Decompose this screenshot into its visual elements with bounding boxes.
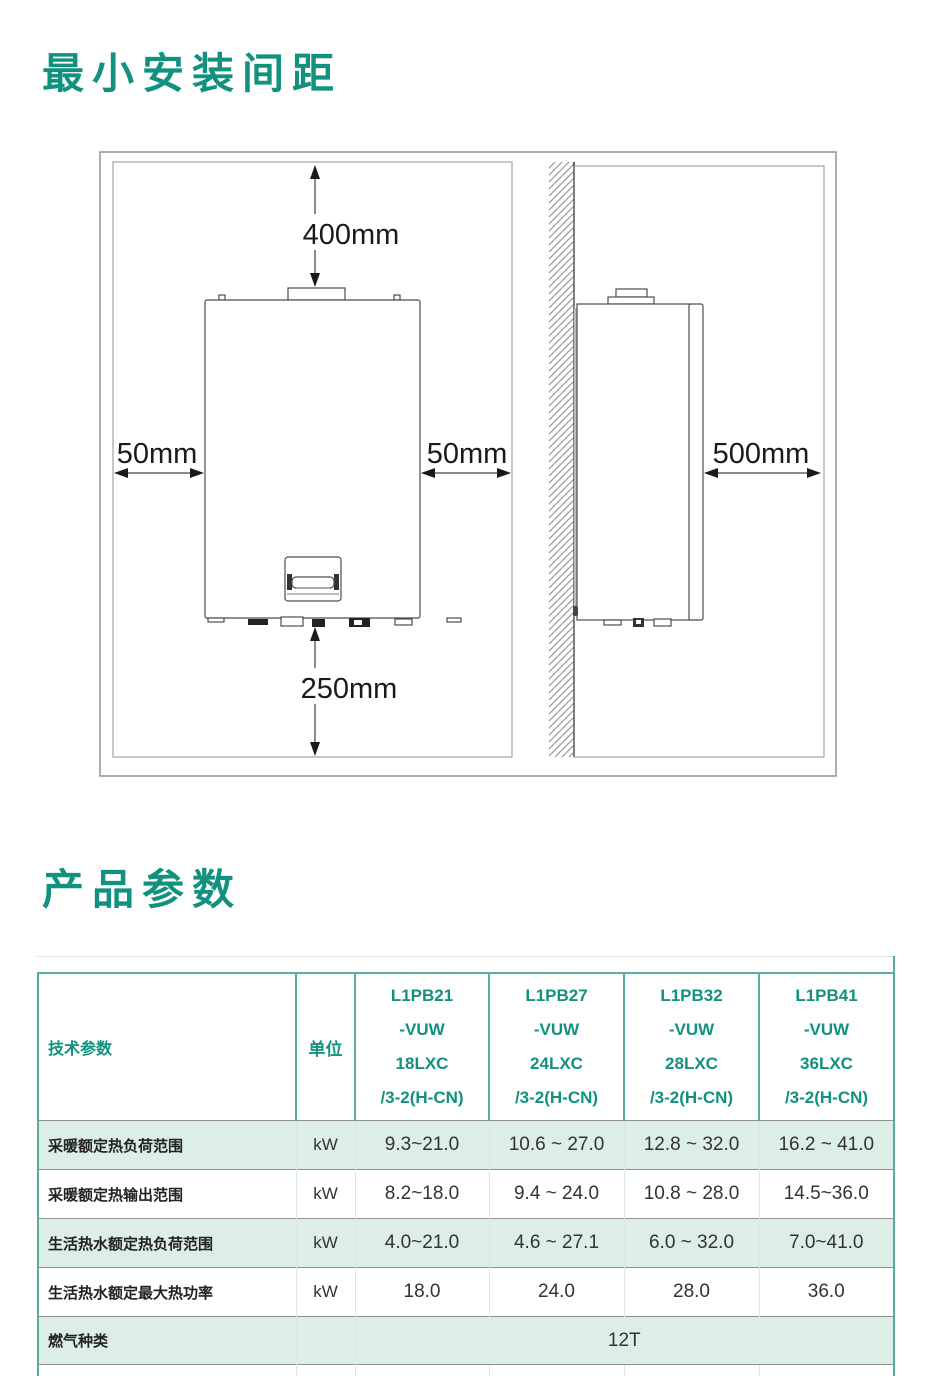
value-cell: 4.6 ~ 27.1 [489,1219,624,1268]
value-cell: 10.6 ~ 27.0 [489,1121,624,1170]
value-cell: 4.0~21.0 [355,1219,489,1268]
flue-collar-front [288,288,345,300]
boiler-front-view [205,288,461,627]
dimension-left: 50mm [115,438,203,473]
install-clearance-title: 最小安装间距 [42,50,342,98]
dimension-label-right: 50mm [427,438,508,470]
model-header-cell: L1PB41 -VUW 36LXC /3-2(H-CN) [759,973,894,1121]
row-label-cell: 燃气种类 [38,1317,296,1365]
value-cell: 12.8 ~ 32.0 [624,1121,759,1170]
wall-hatch [549,162,574,757]
param-header-cell: 技术参数 [38,973,296,1121]
row-label-cell: 生活热水额定热负荷范围 [38,1219,296,1268]
value-cell: 9.3~21.0 [355,1121,489,1170]
unit-cell: kW [296,1170,355,1219]
value-cell: 36.0 [759,1268,894,1317]
mounting-tab [394,295,400,300]
mounting-tab [219,295,225,300]
control-panel [285,557,341,601]
value-cell: 6.0 ~ 32.0 [624,1219,759,1268]
dimension-label-left: 50mm [117,438,198,470]
dimension-top: 400mm [301,166,401,286]
value-cell: 9.4 ~ 24.0 [489,1170,624,1219]
product-parameters-table: 技术参数 单位 L1PB21 -VUW 18LXC /3-2(H-CN) L1P… [37,972,895,1376]
model-header-cell: L1PB27 -VUW 24LXC /3-2(H-CN) [489,973,624,1121]
unit-cell [296,1317,355,1365]
row-label-cell: 生活热水额定最大热功率 [38,1268,296,1317]
dimension-bottom: 250mm [299,628,399,755]
value-cell: 14.5~36.0 [759,1170,894,1219]
value-cell: 28.0 [624,1268,759,1317]
table-row: 采暖额定热负荷范围 kW 9.3~21.0 10.6 ~ 27.0 12.8 ~… [38,1121,894,1170]
row-label-cell: 采暖额定热负荷范围 [38,1121,296,1170]
dimension-label-bottom: 250mm [301,673,398,705]
installation-clearance-diagram: 400mm 250mm 50mm 50mm 500mm [98,150,838,778]
dimension-side: 500mm [705,438,820,473]
boiler-front-panel-side [689,304,703,620]
table-row: 采暖额定热输出范围 kW 8.2~18.0 9.4 ~ 24.0 10.8 ~ … [38,1170,894,1219]
dimension-label-top: 400mm [303,219,400,251]
table-top-hairline [37,956,895,957]
model-header-cell: L1PB21 -VUW 18LXC /3-2(H-CN) [355,973,489,1121]
unit-header-cell: 单位 [296,973,355,1121]
product-params-title: 产品参数 [42,866,242,914]
table-header-row: 技术参数 单位 L1PB21 -VUW 18LXC /3-2(H-CN) L1P… [38,973,894,1121]
unit-cell: kW [296,1268,355,1317]
unit-cell: kW [296,1121,355,1170]
table-row-partial [38,1365,894,1376]
dimension-right: 50mm [422,438,510,473]
unit-cell: kW [296,1219,355,1268]
table-row-gas-type: 燃气种类 12T [38,1317,894,1365]
value-cell: 16.2 ~ 41.0 [759,1121,894,1170]
table-top-accent [893,956,895,973]
flue-collar-side-top [616,289,647,297]
value-cell: 18.0 [355,1268,489,1317]
value-cell: 8.2~18.0 [355,1170,489,1219]
value-cell: 7.0~41.0 [759,1219,894,1268]
value-cell: 24.0 [489,1268,624,1317]
model-header-cell: L1PB32 -VUW 28LXC /3-2(H-CN) [624,973,759,1121]
value-cell: 10.8 ~ 28.0 [624,1170,759,1219]
merged-value-cell: 12T [355,1317,894,1365]
boiler-side-view [573,289,703,627]
row-label-cell: 采暖额定热输出范围 [38,1170,296,1219]
dimension-label-side: 500mm [713,438,810,470]
flue-collar-side-base [608,297,654,304]
table-row: 生活热水额定最大热功率 kW 18.0 24.0 28.0 36.0 [38,1268,894,1317]
product-spec-page: 最小安装间距 [0,0,930,1376]
boiler-side-body [577,304,690,620]
table-row: 生活热水额定热负荷范围 kW 4.0~21.0 4.6 ~ 27.1 6.0 ~… [38,1219,894,1268]
